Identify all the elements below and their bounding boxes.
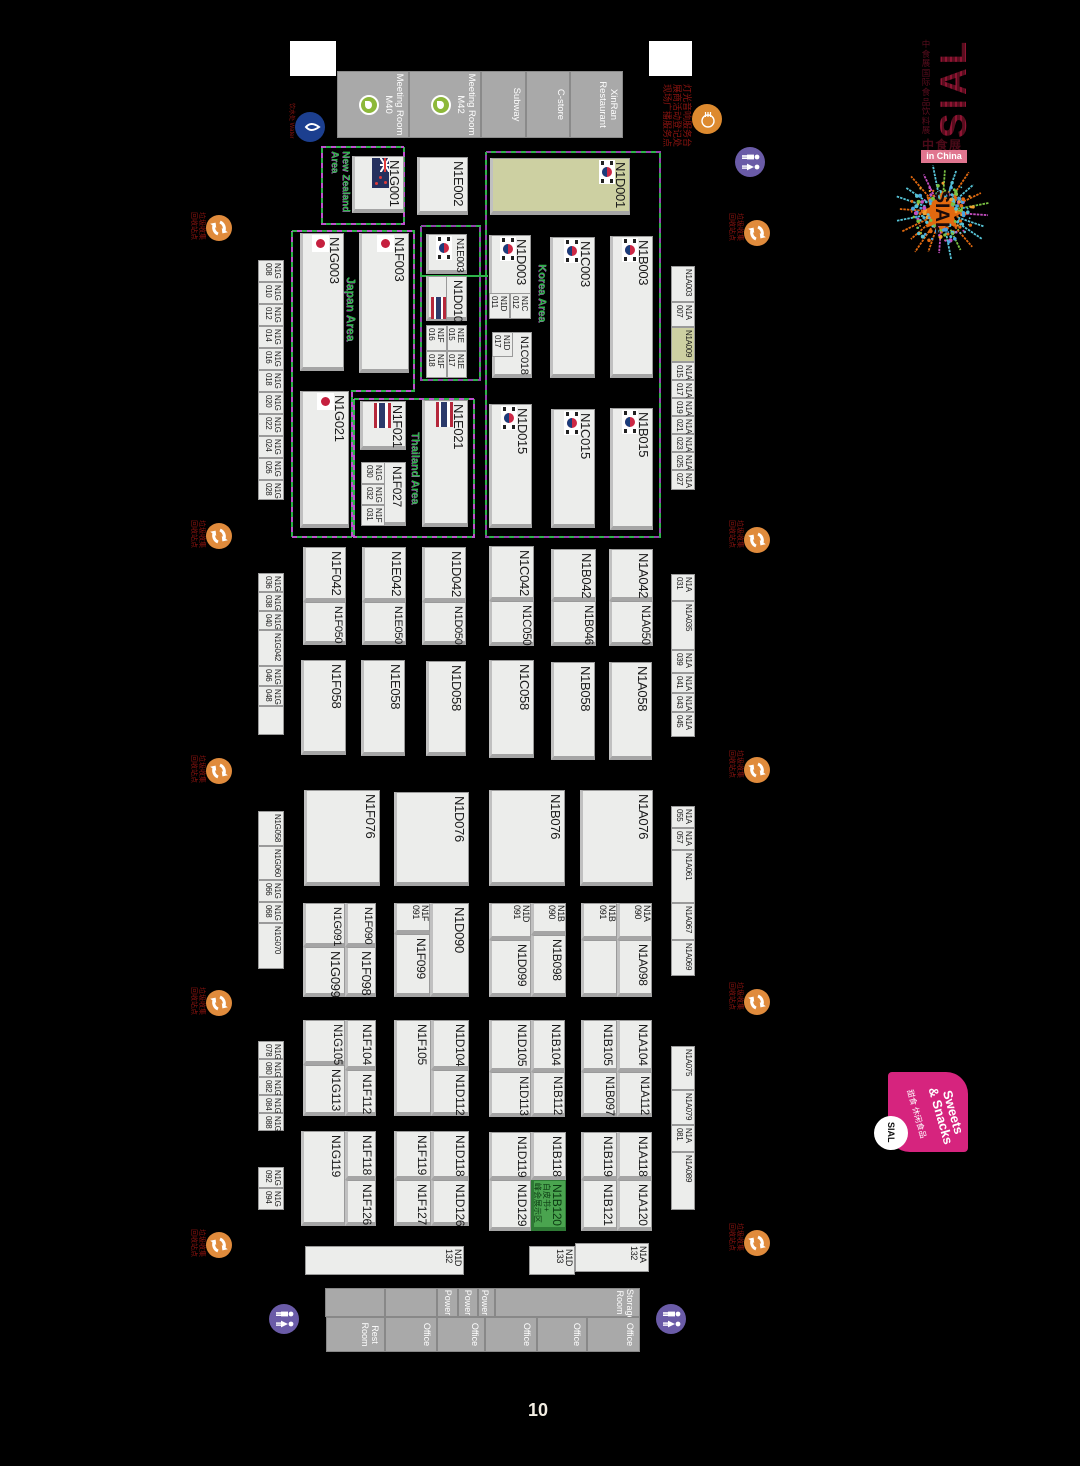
svg-text:SIAL: SIAL (931, 190, 952, 234)
